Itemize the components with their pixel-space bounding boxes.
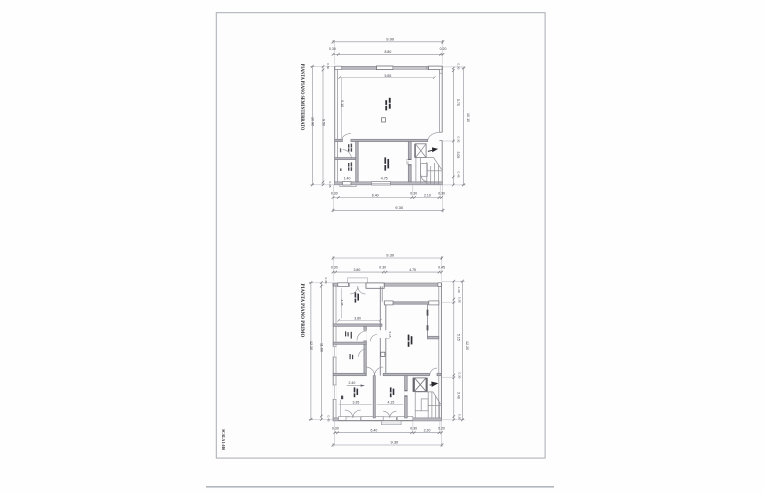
svg-text:6.40: 6.40 xyxy=(372,194,379,198)
svg-text:0.30: 0.30 xyxy=(331,191,338,195)
svg-text:0.30: 0.30 xyxy=(438,191,445,195)
svg-text:2.10: 2.10 xyxy=(424,194,431,198)
svg-text:1.20: 1.20 xyxy=(405,159,409,165)
svg-text:0.30: 0.30 xyxy=(331,266,338,270)
svg-text:11.60: 11.60 xyxy=(320,343,324,352)
svg-text:3.80: 3.80 xyxy=(354,316,361,320)
svg-text:PIANTA PIANO SEMINTERRATO: PIANTA PIANO SEMINTERRATO xyxy=(299,64,305,131)
svg-text:0.30: 0.30 xyxy=(324,278,328,284)
svg-text:0.45: 0.45 xyxy=(456,172,460,178)
svg-text:9.30: 9.30 xyxy=(386,253,395,258)
svg-text:3.05: 3.05 xyxy=(456,152,460,159)
svg-text:0.45: 0.45 xyxy=(438,266,445,270)
svg-text:4.15: 4.15 xyxy=(388,401,395,405)
svg-text:0.30: 0.30 xyxy=(379,266,386,270)
svg-text:0.30: 0.30 xyxy=(457,414,461,420)
svg-text:0.30: 0.30 xyxy=(326,63,330,69)
svg-text:9.90: 9.90 xyxy=(386,37,395,42)
svg-text:0.45: 0.45 xyxy=(327,416,331,422)
svg-text:0.30: 0.30 xyxy=(457,297,461,303)
svg-text:3.45: 3.45 xyxy=(340,300,344,306)
svg-text:12.20: 12.20 xyxy=(465,341,469,350)
svg-text:0.45: 0.45 xyxy=(328,182,332,188)
svg-text:0.30: 0.30 xyxy=(456,64,460,70)
svg-text:0.30: 0.30 xyxy=(329,47,336,51)
svg-text:10.10: 10.10 xyxy=(466,113,470,122)
svg-text:12.20: 12.20 xyxy=(309,341,313,350)
svg-text:0.30: 0.30 xyxy=(332,426,339,430)
svg-text:3.40: 3.40 xyxy=(456,392,460,399)
svg-text:3.80: 3.80 xyxy=(354,268,361,272)
svg-text:8.80: 8.80 xyxy=(385,50,392,54)
svg-text:0.30: 0.30 xyxy=(456,137,460,143)
svg-text:1.00: 1.00 xyxy=(457,287,461,293)
svg-text:0.30: 0.30 xyxy=(410,426,417,430)
svg-text:10.90: 10.90 xyxy=(311,117,315,126)
svg-text:3.35: 3.35 xyxy=(353,401,360,405)
svg-text:9.30: 9.30 xyxy=(391,440,400,445)
svg-text:PIANTA PIANO PRIMO: PIANTA PIANO PRIMO xyxy=(299,284,305,338)
svg-text:9.50: 9.50 xyxy=(321,119,325,126)
svg-text:5.85: 5.85 xyxy=(385,74,392,78)
svg-text:5.15: 5.15 xyxy=(456,334,460,341)
svg-text:9.30: 9.30 xyxy=(395,205,404,210)
svg-text:0.30: 0.30 xyxy=(457,373,461,379)
svg-text:SCALA 1:100: SCALA 1:100 xyxy=(221,429,226,450)
svg-text:4.75: 4.75 xyxy=(409,268,416,272)
svg-text:5.15: 5.15 xyxy=(388,332,392,338)
svg-text:5.75: 5.75 xyxy=(456,99,460,106)
svg-text:0.20: 0.20 xyxy=(440,47,447,51)
svg-text:0.30: 0.30 xyxy=(410,191,417,195)
svg-text:9.10: 9.10 xyxy=(340,100,344,107)
svg-text:2.20: 2.20 xyxy=(424,429,431,433)
svg-text:2.40: 2.40 xyxy=(349,381,356,385)
svg-text:6.40: 6.40 xyxy=(371,429,378,433)
svg-text:1.40: 1.40 xyxy=(344,177,351,181)
svg-text:4.75: 4.75 xyxy=(381,177,388,181)
svg-text:0.20: 0.20 xyxy=(438,426,445,430)
